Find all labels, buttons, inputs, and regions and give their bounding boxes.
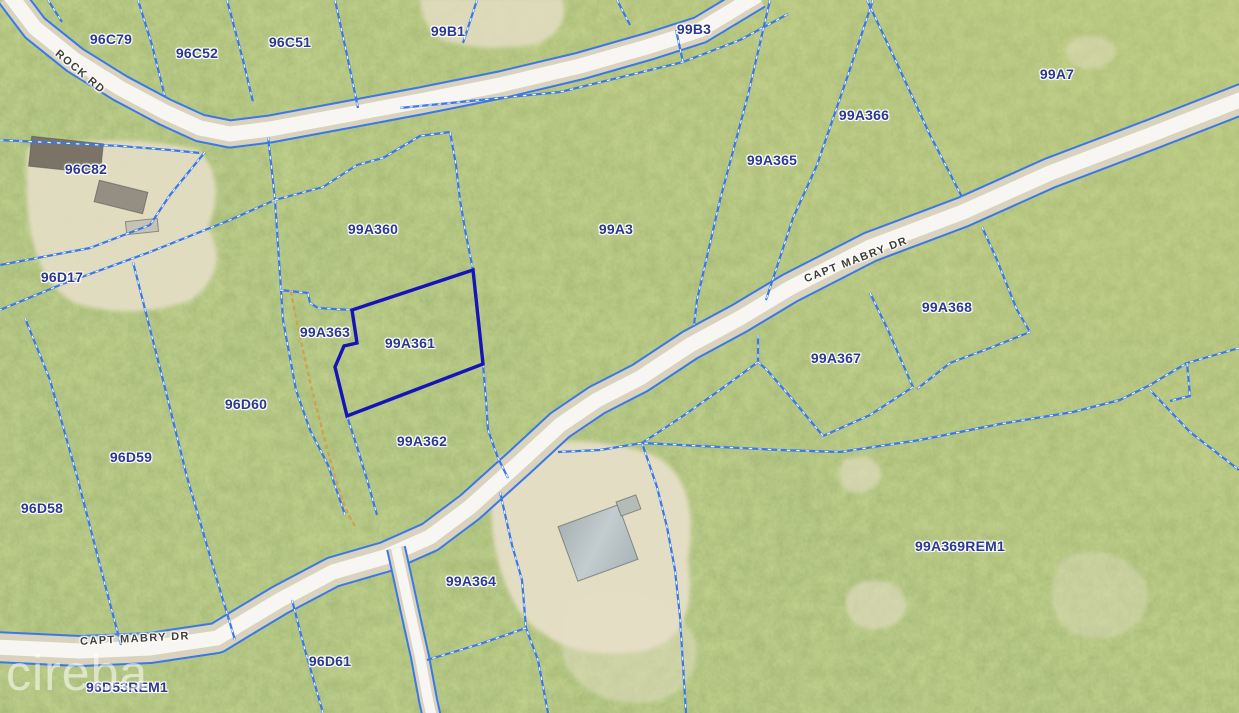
parcel-label-99A7[interactable]: 99A7 — [1040, 66, 1074, 82]
parcel-label-99B1[interactable]: 99B1 — [431, 23, 465, 39]
parcel-label-96D58[interactable]: 96D58 — [21, 500, 63, 516]
parcel-label-96D61[interactable]: 96D61 — [309, 653, 351, 669]
parcel-label-96C82[interactable]: 96C82 — [65, 161, 107, 177]
parcel-label-99A360[interactable]: 99A360 — [348, 221, 398, 237]
parcel-label-99A363[interactable]: 99A363 — [300, 324, 350, 340]
parcel-label-99A365[interactable]: 99A365 — [747, 152, 797, 168]
parcel-label-96D60[interactable]: 96D60 — [225, 396, 267, 412]
parcel-label-99A369REM1[interactable]: 99A369REM1 — [915, 538, 1005, 554]
parcel-label-96D17[interactable]: 96D17 — [41, 269, 83, 285]
parcel-label-99A367[interactable]: 99A367 — [811, 350, 861, 366]
parcel-label-99A362[interactable]: 99A362 — [397, 433, 447, 449]
parcel-label-96C52[interactable]: 96C52 — [176, 45, 218, 61]
parcel-label-99A368[interactable]: 99A368 — [922, 299, 972, 315]
aerial-imagery — [0, 0, 1239, 713]
map-canvas[interactable]: 96C7996C5296C5199B199B399A799A36699A3659… — [0, 0, 1239, 713]
parcel-label-96C51[interactable]: 96C51 — [269, 34, 311, 50]
parcel-label-99A366[interactable]: 99A366 — [839, 107, 889, 123]
cireba-watermark: cireba — [6, 644, 148, 702]
parcel-label-96C79[interactable]: 96C79 — [90, 31, 132, 47]
parcel-label-99B3[interactable]: 99B3 — [677, 21, 711, 37]
parcel-label-96D59[interactable]: 96D59 — [110, 449, 152, 465]
parcel-label-99A3[interactable]: 99A3 — [599, 221, 633, 237]
parcel-label-99A364[interactable]: 99A364 — [446, 573, 496, 589]
parcel-label-99A361[interactable]: 99A361 — [385, 335, 435, 351]
